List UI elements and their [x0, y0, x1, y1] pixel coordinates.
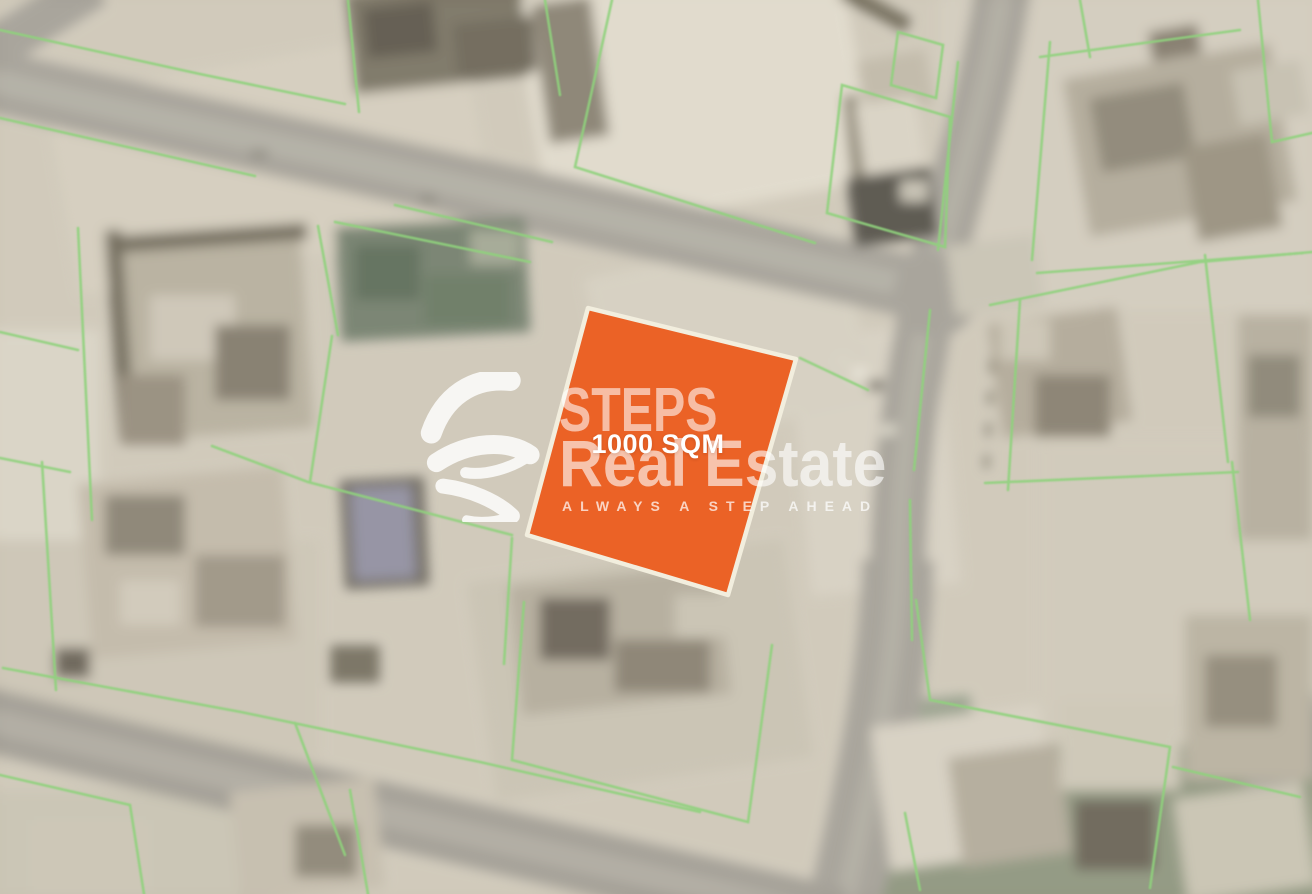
plot-area-label: 1000 SQM — [578, 431, 738, 458]
steps-swoosh-icon — [413, 372, 548, 522]
watermark-tagline: ALWAYS A STEP AHEAD — [562, 499, 878, 513]
satellite-map-image: STEPS Real Estate ALWAYS A STEP AHEAD 10… — [0, 0, 1312, 894]
